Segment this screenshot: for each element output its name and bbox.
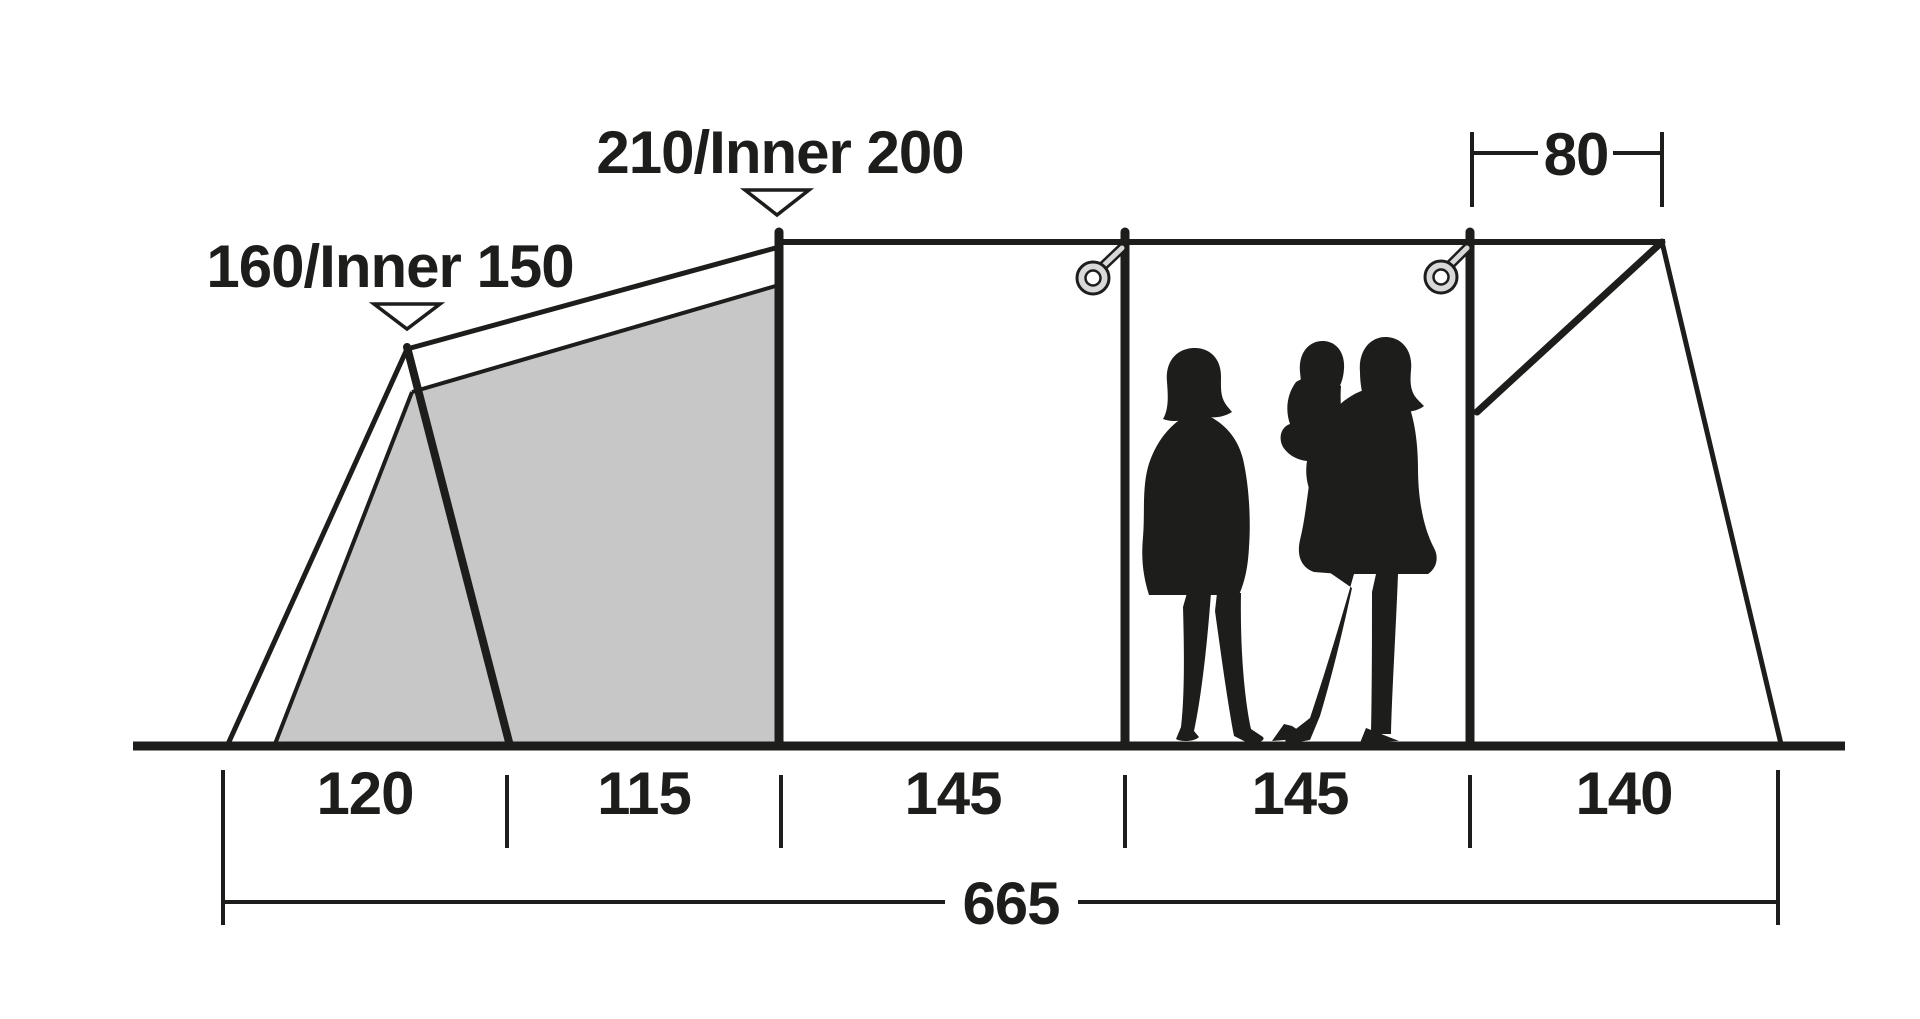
- total-dimension-665: 665: [223, 870, 1778, 937]
- section-dimension-value: 140: [1575, 760, 1672, 827]
- adult-silhouette: [1142, 348, 1263, 743]
- main-peak-height-label: 210/Inner 200: [596, 119, 963, 186]
- inner-tent-shaded-area: [275, 285, 779, 744]
- dimension-value: 80: [1544, 121, 1609, 188]
- diagram-canvas: 160/Inner 150 210/Inner 200 80 120 115 1…: [0, 0, 1920, 1019]
- middle-pole-guy-ring: [1077, 248, 1122, 294]
- family-silhouette: [1142, 337, 1436, 743]
- section-dimension-value: 120: [316, 760, 413, 827]
- rear-slope-line: [1662, 242, 1781, 744]
- guy-ring-hole: [1086, 271, 1101, 286]
- tent-dimension-diagram: 160/Inner 150 210/Inner 200 80 120 115 1…: [0, 0, 1920, 1019]
- front-peak-height-label: 160/Inner 150: [206, 233, 573, 300]
- section-dimension-value: 145: [904, 760, 1001, 827]
- adult-carrying-child-silhouette: [1272, 337, 1437, 743]
- section-dimension-value: 115: [597, 760, 691, 827]
- rear-pole-guy-ring: [1425, 248, 1467, 293]
- triangle-down-marker-icon: [374, 304, 440, 329]
- triangle-down-marker-icon: [745, 190, 809, 215]
- guy-ring-hole: [1434, 270, 1449, 285]
- top-dimension-80: 80: [1472, 121, 1662, 207]
- dimension-value: 665: [962, 870, 1059, 937]
- rear-diagonal-brace: [1477, 242, 1662, 412]
- section-dimension-value: 145: [1251, 760, 1348, 827]
